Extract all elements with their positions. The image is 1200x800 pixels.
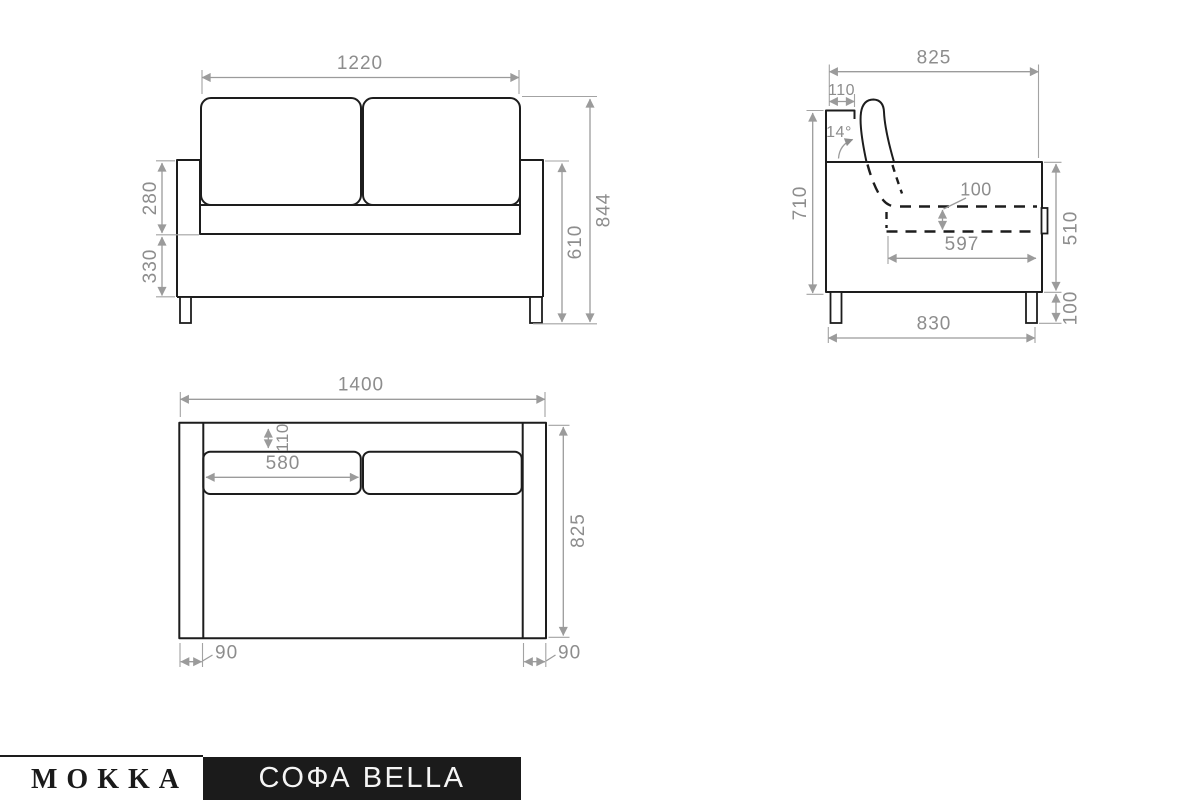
drawing-sheet: 1220 280 330 610 844 14° <box>0 0 1200 800</box>
dim-label-side-depth-top: 825 <box>917 48 952 69</box>
front-left-cushion <box>201 98 361 205</box>
front-right-arm <box>520 160 543 297</box>
front-left-leg <box>180 297 191 323</box>
top-right-cushion <box>363 452 522 494</box>
dim-label-front-total-height: 844 <box>594 193 615 228</box>
dim-label-side-angle: 14° <box>826 124 852 141</box>
dim-label-side-frame-height: 510 <box>1061 211 1082 246</box>
dim-label-top-cushion-width: 580 <box>266 453 301 474</box>
dim-label-side-height: 710 <box>790 186 811 221</box>
dim-label-top-total-depth: 825 <box>568 513 589 548</box>
side-back-cushion <box>861 100 894 163</box>
front-view: 1220 280 330 610 844 <box>140 53 615 324</box>
dim-label-front-base-height: 330 <box>140 249 161 284</box>
product-name: СОФА BELLA <box>259 762 466 795</box>
side-front-leg <box>831 292 842 323</box>
dim-label-side-backrest-top-depth: 110 <box>828 82 855 99</box>
side-fold-outline-inner <box>893 165 903 194</box>
angle-arc <box>839 140 853 159</box>
product-name-badge: СОФА BELLA <box>203 757 521 800</box>
dim-label-top-right-arm-width: 90 <box>558 643 581 664</box>
dim-label-top-backrest-depth: 110 <box>273 423 292 452</box>
dim-label-side-depth-bottom: 830 <box>917 314 952 335</box>
front-seat-band <box>200 205 520 234</box>
front-right-cushion <box>363 98 520 205</box>
top-view: 1400 110 580 825 90 90 <box>179 375 589 668</box>
side-back-leg <box>1026 292 1037 323</box>
side-fold-outline-outer <box>868 165 898 207</box>
front-left-arm <box>177 160 200 297</box>
dim-label-front-backrest-above-arm: 280 <box>140 181 161 216</box>
top-body <box>179 423 546 639</box>
dim-label-top-total-width: 1400 <box>338 375 384 396</box>
side-body <box>826 162 1042 292</box>
dim-label-front-seat-width: 1220 <box>337 53 383 74</box>
dim-label-side-leg-height: 100 <box>1061 291 1082 326</box>
front-right-leg <box>530 297 542 323</box>
dim-label-front-arm-height: 610 <box>565 225 586 260</box>
dim-label-top-left-arm-width: 90 <box>215 643 238 664</box>
dim-label-side-fold-out-length: 597 <box>945 234 980 255</box>
brand-logo: MOKKA <box>16 761 203 798</box>
dim-label-side-cushion-thickness: 100 <box>960 180 992 200</box>
brand-divider-line <box>0 755 203 757</box>
side-view: 14° 825 110 710 100 597 510 100 830 <box>790 48 1082 344</box>
technical-drawing: 1220 280 330 610 844 14° <box>0 0 1200 800</box>
side-latch <box>1042 208 1048 234</box>
